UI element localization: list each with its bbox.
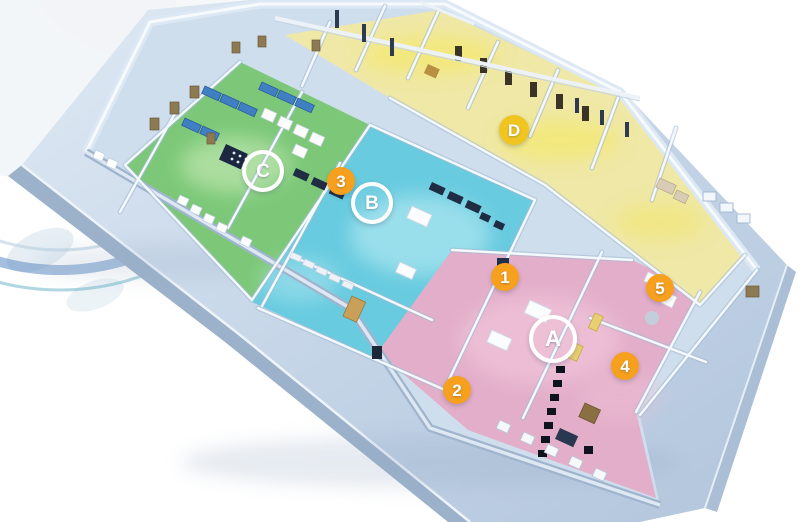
floorplan-scene: ABCD12345: [0, 0, 800, 522]
dark-doorway: [497, 258, 509, 267]
round-fixture: [645, 311, 659, 325]
office-chair: [584, 446, 593, 454]
zone-d-glow: [615, 204, 705, 240]
dark-doorway: [372, 346, 382, 359]
floorplan-illustration: [0, 0, 800, 522]
